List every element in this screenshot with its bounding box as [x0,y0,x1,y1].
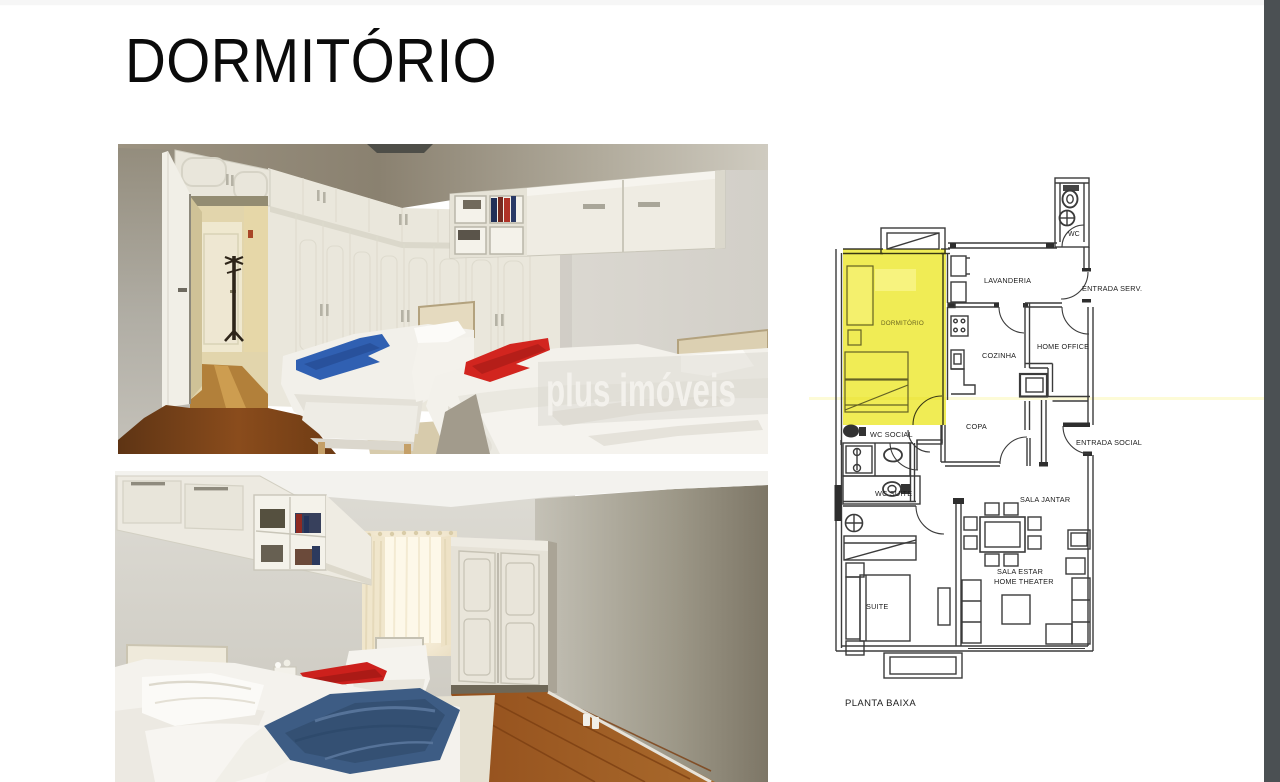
svg-text:LAVANDERIA: LAVANDERIA [984,276,1031,285]
svg-text:WC SOCIAL: WC SOCIAL [870,430,913,439]
svg-text:COPA: COPA [966,422,987,431]
svg-text:ENTRADA SERV.: ENTRADA SERV. [1082,284,1142,293]
svg-text:plus imóveis: plus imóveis [546,364,736,416]
svg-text:COZINHA: COZINHA [982,351,1016,360]
svg-text:ENTRADA SOCIAL: ENTRADA SOCIAL [1076,438,1142,447]
svg-text:WC: WC [1068,231,1080,238]
svg-text:SALA JANTAR: SALA JANTAR [1020,495,1070,504]
svg-text:HOME OFFICE: HOME OFFICE [1037,342,1089,351]
svg-text:DORMITÓRIO: DORMITÓRIO [881,318,924,327]
svg-text:WC SUITE: WC SUITE [875,489,912,498]
svg-text:PLANTA BAIXA: PLANTA BAIXA [845,698,916,709]
svg-text:SALA ESTAR: SALA ESTAR [997,567,1043,576]
svg-text:SUITE: SUITE [866,602,889,611]
svg-text:HOME THEATER: HOME THEATER [994,577,1054,586]
